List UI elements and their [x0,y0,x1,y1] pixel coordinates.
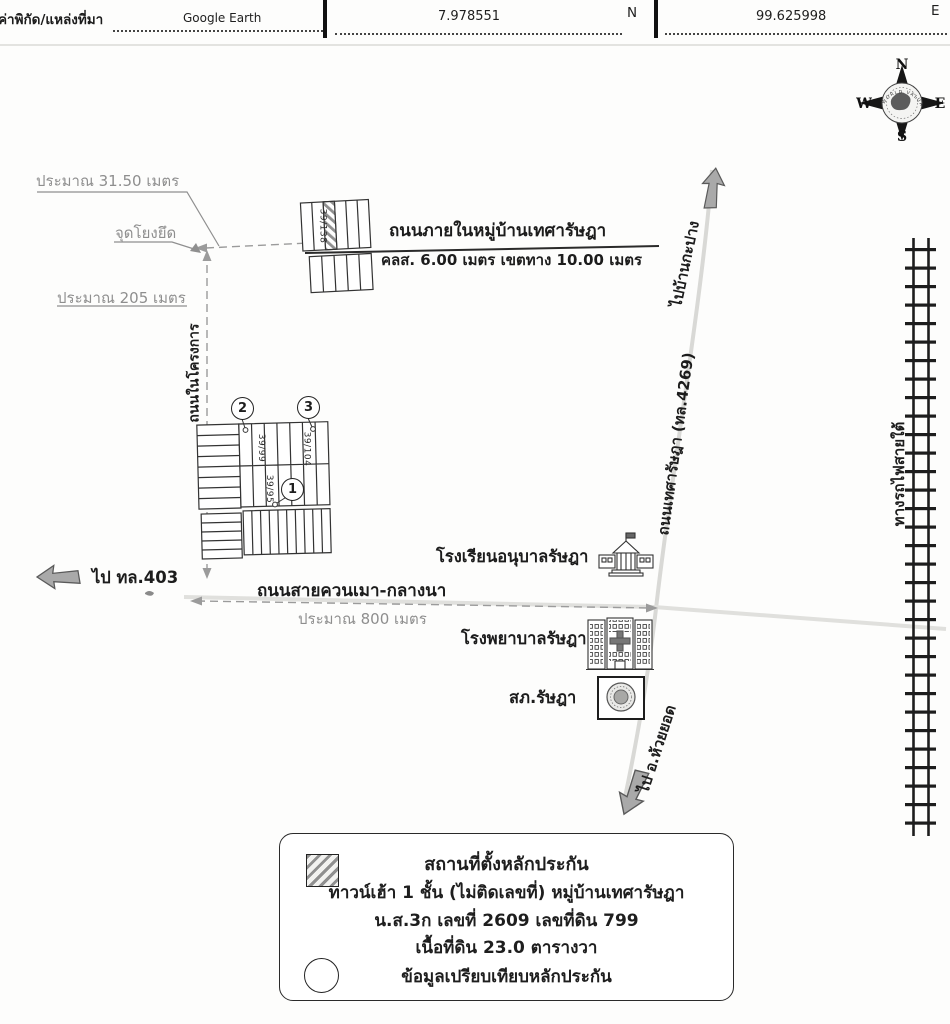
ink-speck [145,591,154,596]
police-label: สภ.รัษฎา [509,685,576,711]
anchor-point-label: จุดโยงยึด [115,221,176,245]
legend-title: สถานที่ตั้งหลักประกัน [280,849,733,878]
legend-deed-number: น.ส.3ก เลขที่ 2609 เลขที่ดิน 799 [280,907,733,934]
school-label: โรงเรียนอนุบาลรัษฎา [436,544,588,570]
legend-land-area: เนื้อที่ดิน 23.0 ตารางวา [280,934,733,961]
dim-800-label: ประมาณ 800 เมตร [298,607,427,631]
marker-2: 2 [231,397,254,420]
hospital-icon [586,618,654,670]
scanned-map-page: ค่าพิกัด/แหล่งที่มา Google Earth 7.97855… [0,0,950,1024]
legend-description: ทาวน์เฮ้า 1 ชั้น (ไม่ติดเลขที่) หมู่บ้าน… [280,879,733,906]
arrow-north-icon [699,167,726,211]
railway-track [905,238,936,836]
village-road-label: ถนนภายในหมู่บ้านเทศารัษฎา [389,217,606,244]
kuan-mao-road-label: ถนนสายควนเมา-กลางนา [257,577,446,604]
subject-plot-block [300,200,373,293]
plot-number-39-138: 39/138 [317,209,327,244]
plot-number-39-104: 39/104 [301,432,311,467]
railway-label: ทางรถไฟสายใต้ [887,421,911,527]
project-road-label: ถนนในโครงการ [184,323,206,422]
plot-number-39-99: 39/99 [256,434,266,462]
village-road-spec-label: คลส. 6.00 เมตร เขตทาง 10.00 เมตร [381,248,642,272]
legend-comparison-label: ข้อมูลเปรียบเทียบหลักประกัน [280,963,733,990]
marker-3: 3 [297,396,320,419]
marker-1: 1 [281,478,304,501]
to-403-label: ไป ทล.403 [92,565,178,591]
dim-width-label: ประมาณ 31.50 เมตร [36,169,179,193]
arrow-west-icon [37,565,80,588]
school-icon [599,533,653,576]
hospital-label: โรงพยาบาลรัษฎา [461,626,587,652]
dim-height-label: ประมาณ 205 เมตร [57,286,186,310]
plot-number-39-95: 39/95 [264,475,274,503]
legend-box: สถานที่ตั้งหลักประกัน ทาวน์เฮ้า 1 ชั้น (… [279,833,734,1001]
police-icon [598,677,644,719]
